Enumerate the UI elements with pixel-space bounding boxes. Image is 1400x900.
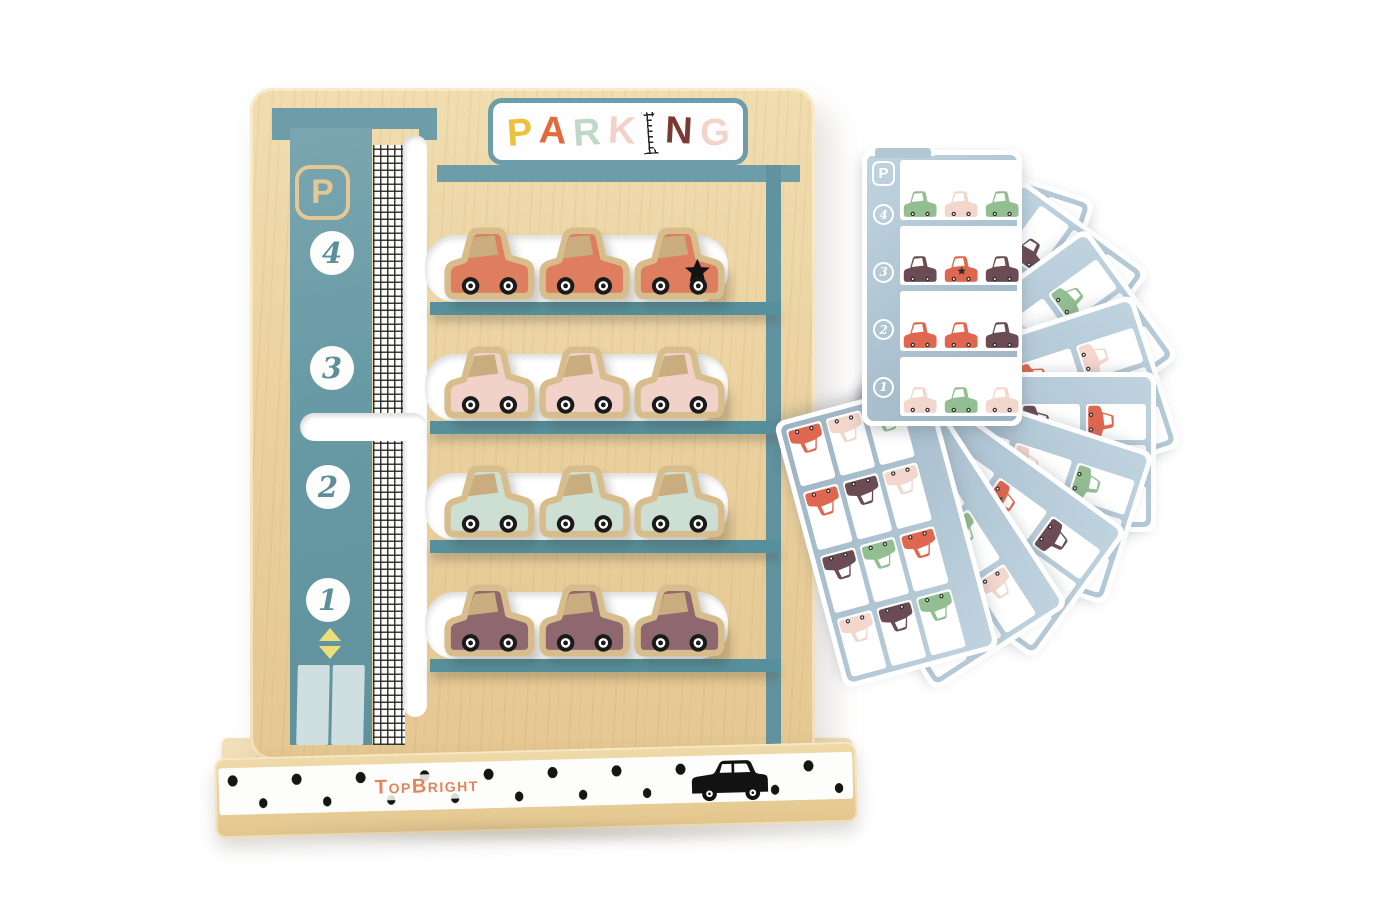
sign-letter-n: N [664,111,693,150]
toy-car-graphic [443,222,535,302]
toy-car-level-3-pos-1 [443,341,535,421]
card-car-icon [882,463,925,502]
card-car-icon [902,384,938,415]
crosshatch-grid-strip [373,145,405,745]
elevator-up-icon [319,628,341,641]
toy-car-level-3-pos-3 [633,341,725,421]
parking-p-badge: P [295,165,350,220]
brand-part: B [412,775,429,797]
toy-car-graphic [443,341,535,421]
floor-badge-1: 1 [306,578,350,622]
toy-car-level-4-pos-3 [633,222,725,302]
card-car-icon [902,319,938,350]
toy-car-level-1-pos-1 [443,579,535,659]
toy-car-graphic [443,460,535,540]
p-badge-letter: P [311,173,334,212]
card-car-icon [837,610,880,649]
card-floor-ring-slot: 4 [873,186,894,244]
card-floor-ring-slot: 2 [873,301,894,359]
toy-car-level-4-pos-1 [443,222,535,302]
elevator-doors [297,665,363,745]
column-capital-foot-left [272,128,290,140]
toy-car-level-2-pos-1 [443,460,535,540]
toy-car-graphic [538,579,630,659]
toy-car-graphic [633,222,725,302]
roof-band [437,165,800,182]
floor-badge-2: 2 [306,465,350,509]
card-car-icon [943,188,979,219]
black-car-silhouette-icon [668,756,791,803]
toy-car-level-2-pos-3 [633,460,725,540]
card-car-icon [902,188,938,219]
brand-part: OP [388,779,412,796]
card-car-icon [820,547,863,586]
card-car-icon [902,253,938,284]
parking-board: P 4321 PARKNG [250,88,815,760]
toy-car-level-4-pos-2 [538,222,630,302]
sign-letter-r: R [572,113,602,153]
brand-part: T [375,776,389,798]
card-row [900,291,1022,351]
parking-sign: PARKNG [488,98,748,165]
card-floor-number-2: 2 [873,319,894,340]
sign-letter-p: P [505,113,533,153]
brand-part: RIGHT [428,777,479,794]
card-floor-number-3: 3 [873,262,894,283]
column-capital [272,108,437,129]
card-car-icon [803,484,846,523]
elevator-door-left [296,665,329,745]
sign-letter-a: A [538,111,567,150]
horizontal-slide-slot [300,413,427,441]
card-floor-ring-slot: 3 [873,244,894,302]
card-rows [900,160,1022,416]
card-car-icon [943,253,979,284]
toy-car-graphic [538,341,630,421]
floor-badge-4: 4 [310,231,354,275]
card-row [900,226,1022,286]
card-body: P4321 [867,155,1017,421]
ground-shadow [235,820,835,844]
card-car-icon [859,536,902,575]
brand-logo: TOPBRIGHT [369,772,486,800]
shelf-level-1 [430,659,781,672]
sign-letter-i [641,111,660,154]
card-parapet-tab [871,144,935,156]
base-band-dots: TOPBRIGHT [218,752,853,816]
toy-car-graphic [538,460,630,540]
toy-car-level-3-pos-2 [538,341,630,421]
sign-letter-g: G [699,113,731,153]
card-car-icon [984,384,1020,415]
card-car-icon [943,384,979,415]
card-row [900,357,1022,417]
card-car-icon [899,526,942,565]
shelf-level-4 [430,302,781,315]
card-car-icon [842,473,885,512]
card-car-icon [943,319,979,350]
card-p-badge: P [872,161,895,186]
toy-car-level-2-pos-2 [538,460,630,540]
card-car-icon [786,420,829,459]
toy-car-graphic [443,579,535,659]
pattern-card-front: P4321 [862,150,1022,426]
card-floor-number-1: 1 [873,377,894,398]
toy-car-level-1-pos-3 [633,579,725,659]
card-car-icon [916,589,959,628]
shelf-level-2 [430,540,781,553]
product-photo: P 4321 PARKNG TOPBRIGHT P4321 [0,0,1400,900]
toy-car-graphic [633,579,725,659]
sign-letter-k: K [607,111,636,150]
card-car-icon [876,600,919,639]
toy-car-graphic [633,460,725,540]
card-car-icon [984,253,1020,284]
elevator-door-right [331,665,364,745]
vintage-car-graphic [668,756,791,803]
shelf-level-3 [430,421,781,434]
card-row [900,160,1022,220]
floor-badge-3: 3 [310,346,354,390]
card-car-icon [984,319,1020,350]
card-floor-number-4: 4 [873,204,894,225]
card-floor-ring-slot: 1 [873,359,894,417]
card-car-icon [984,188,1020,219]
toy-car-level-1-pos-2 [538,579,630,659]
elevator-down-icon [319,646,341,659]
toy-car-graphic [538,222,630,302]
card-header-column: P4321 [872,160,895,416]
toy-car-graphic [633,341,725,421]
